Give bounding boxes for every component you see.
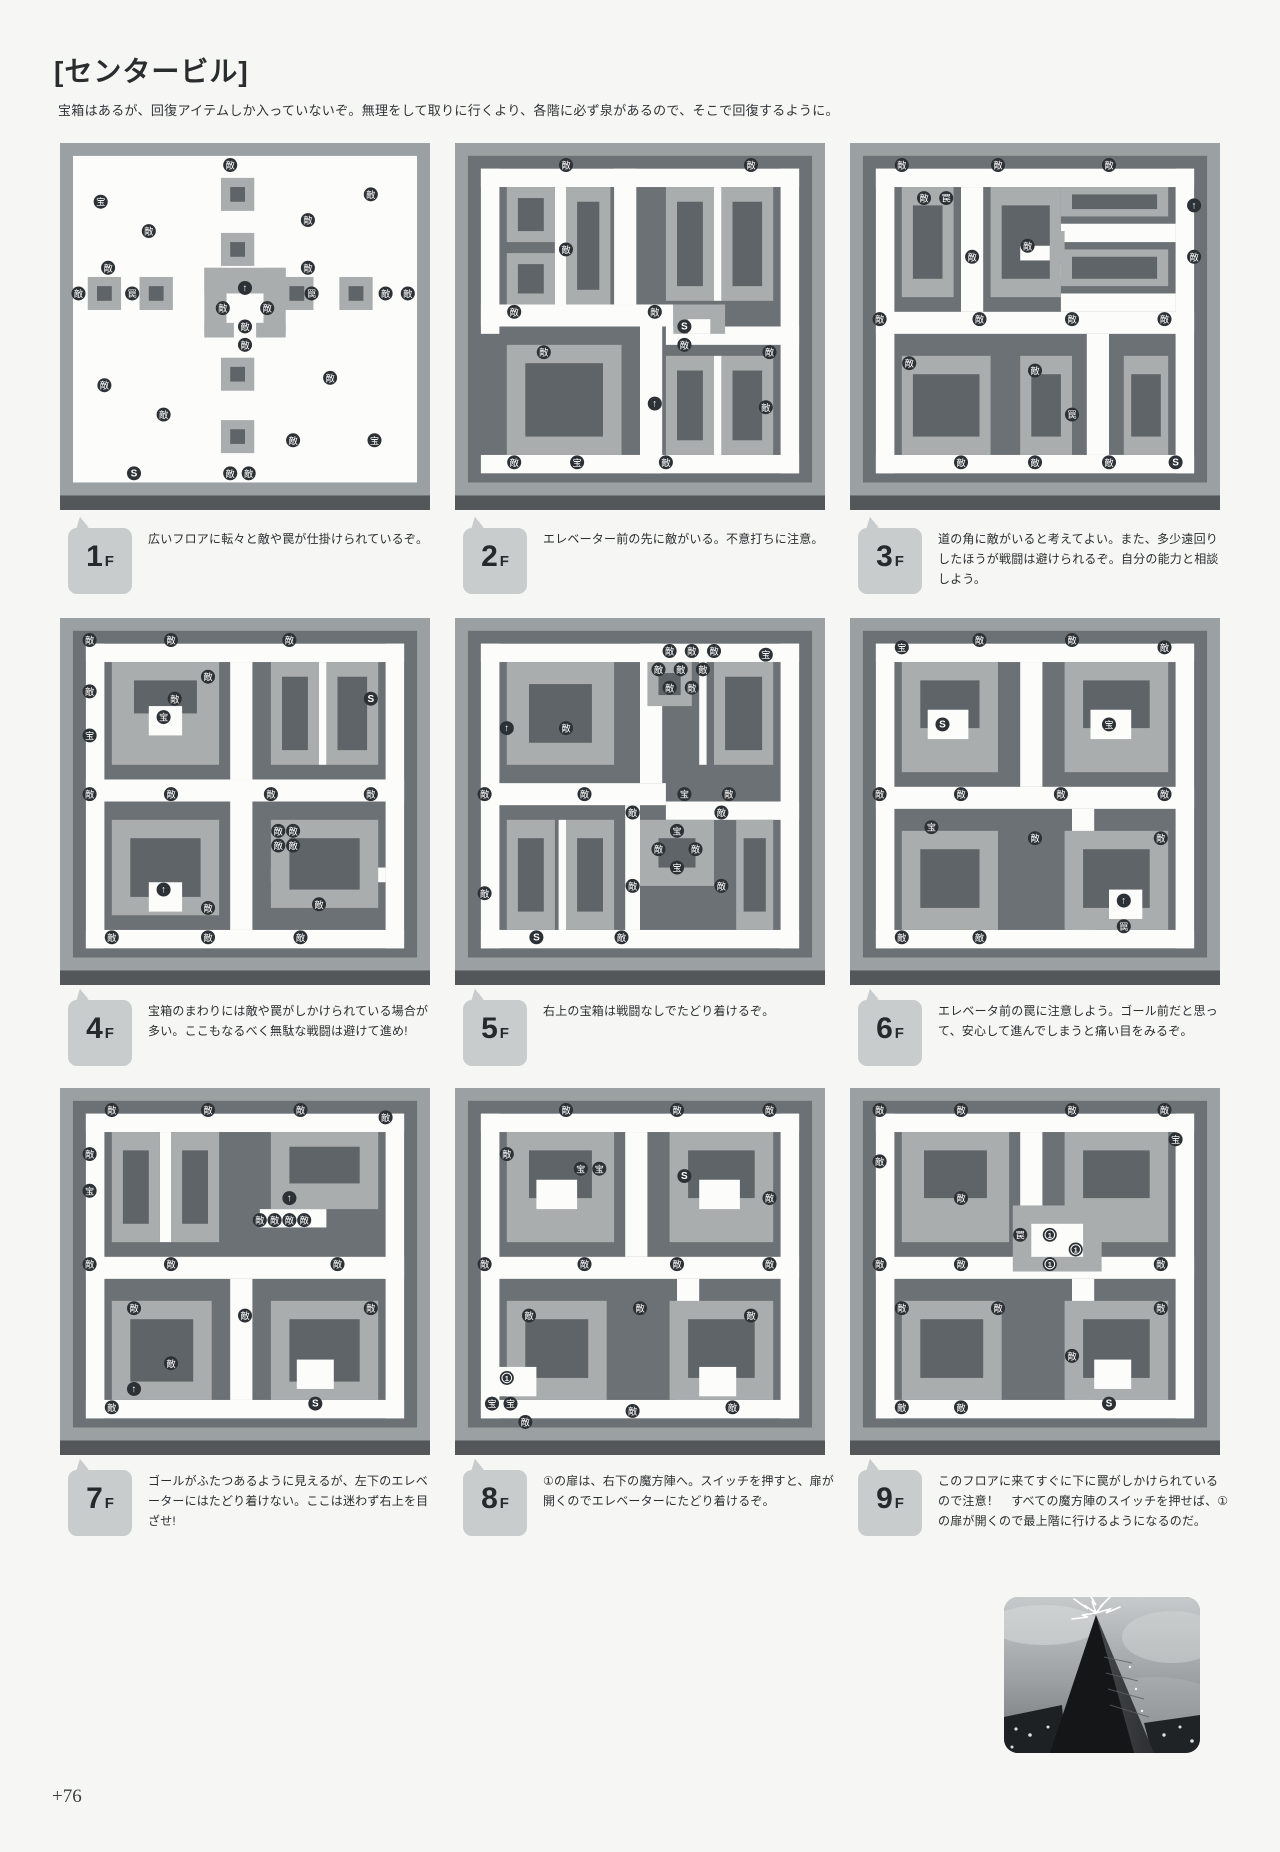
enemy-icon: 敵: [1021, 239, 1035, 253]
enemy-icon: 敵: [954, 1103, 968, 1117]
svg-text:敵: 敵: [288, 435, 297, 446]
floor-map-2f: 敵敵敵敵敵S敵敵敵敵↑敵宝敵: [455, 143, 825, 510]
svg-text:敵: 敵: [285, 1215, 294, 1226]
trap-icon: 罠: [1117, 919, 1131, 933]
svg-text:敵: 敵: [1067, 1350, 1076, 1361]
enemy-icon: 敵: [991, 158, 1005, 172]
svg-text:敵: 敵: [687, 646, 696, 657]
enemy-icon: 敵: [873, 1154, 887, 1168]
svg-text:敵: 敵: [897, 1303, 906, 1314]
enemy-icon: 敵: [895, 1400, 909, 1414]
enemy-icon: 敵: [216, 301, 230, 315]
enemy-icon: 敵: [648, 305, 662, 319]
svg-text:敵: 敵: [381, 1112, 390, 1123]
floor-suffix: F: [500, 553, 509, 570]
enemy-icon: 敵: [674, 662, 688, 676]
enemy-icon: 敵: [282, 633, 296, 647]
svg-text:敵: 敵: [1156, 1303, 1165, 1314]
start-icon: S: [677, 1169, 691, 1183]
enemy-icon: 敵: [965, 250, 979, 264]
svg-text:敵: 敵: [628, 807, 637, 818]
enemy-icon: 敵: [972, 633, 986, 647]
enemy-icon: 敵: [1028, 364, 1042, 378]
enemy-icon: 敵: [762, 345, 776, 359]
svg-text:敵: 敵: [975, 635, 984, 646]
svg-text:宝: 宝: [672, 825, 681, 836]
elevator-icon: ↑: [1117, 894, 1131, 908]
enemy-icon: 敵: [83, 1147, 97, 1161]
svg-text:S: S: [681, 322, 688, 333]
svg-text:敵: 敵: [724, 789, 733, 800]
enemy-icon: 敵: [991, 1301, 1005, 1315]
svg-text:敵: 敵: [100, 380, 109, 391]
svg-text:敵: 敵: [203, 671, 212, 682]
svg-text:敵: 敵: [919, 193, 928, 204]
start-icon: S: [308, 1397, 322, 1411]
enemy-icon: 敵: [895, 158, 909, 172]
enemy-icon: 敵: [559, 721, 573, 735]
svg-text:敵: 敵: [166, 789, 175, 800]
svg-text:敵: 敵: [107, 1402, 116, 1413]
svg-text:敵: 敵: [226, 160, 235, 171]
elevator-icon: ↑: [127, 1382, 141, 1396]
floor-tab-3f: 3F: [858, 528, 922, 594]
enemy-icon: 敵: [105, 930, 119, 944]
svg-text:敵: 敵: [510, 306, 519, 317]
enemy-icon: 敵: [223, 158, 237, 172]
enemy-icon: 敵: [201, 901, 215, 915]
floor-caption-5f: 右上の宝箱は戦闘なしでたどり着けるぞ。: [543, 1002, 835, 1022]
enemy-icon: 敵: [364, 1301, 378, 1315]
floor-tab-2f: 2F: [463, 528, 527, 594]
svg-text:敵: 敵: [628, 880, 637, 891]
svg-text:敵: 敵: [765, 347, 774, 358]
enemy-icon: 敵: [577, 1257, 591, 1271]
svg-text:敵: 敵: [85, 635, 94, 646]
enemy-icon: 敵: [762, 1191, 776, 1205]
enemy-icon: 敵: [201, 930, 215, 944]
enemy-icon: 敵: [762, 1103, 776, 1117]
svg-text:敵: 敵: [687, 682, 696, 693]
floor-number: 1: [86, 542, 103, 572]
svg-text:宝: 宝: [370, 435, 379, 446]
enemy-icon: 敵: [759, 400, 773, 414]
enemy-icon: 敵: [157, 408, 171, 422]
enemy-icon: 敵: [301, 213, 315, 227]
svg-text:宝: 宝: [1104, 719, 1113, 730]
enemy-icon: 敵: [1065, 633, 1079, 647]
svg-text:敵: 敵: [875, 1156, 884, 1167]
trap-icon: 罠: [305, 286, 319, 300]
svg-text:敵: 敵: [480, 1259, 489, 1270]
floor-map-6f: 宝敵敵敵S宝敵敵敵敵宝敵敵↑罠敵敵: [850, 618, 1220, 985]
svg-text:罠: 罠: [942, 194, 951, 204]
intro-text: 宝箱はあるが、回復アイテムしか入っていないぞ。無理をして取りに行くより、各階に必…: [58, 100, 1058, 119]
svg-text:敵: 敵: [296, 932, 305, 943]
treasure-icon: 宝: [574, 1162, 588, 1176]
svg-text:敵: 敵: [296, 1105, 305, 1116]
floor-caption-6f: エレベータ前の罠に注意しよう。ゴール前だと思って、安心して進んでしまうと痛い目を…: [938, 1002, 1230, 1042]
floor-suffix: F: [895, 553, 904, 570]
enemy-icon: 敵: [1157, 1103, 1171, 1117]
enemy-icon: 敵: [168, 692, 182, 706]
enemy-icon: 敵: [271, 839, 285, 853]
guide-page: [センタービル] 宝箱はあるが、回復アイテムしか入っていないぞ。無理をして取りに…: [0, 0, 1280, 1852]
enemy-icon: 敵: [1154, 1301, 1168, 1315]
enemy-icon: 敵: [507, 455, 521, 469]
floor-number: 2: [481, 542, 498, 572]
enemy-icon: 敵: [522, 1309, 536, 1323]
svg-text:敵: 敵: [480, 789, 489, 800]
enemy-icon: 敵: [954, 1191, 968, 1205]
enemy-icon: 敵: [1187, 250, 1201, 264]
svg-text:敵: 敵: [1160, 642, 1169, 653]
enemy-icon: 敵: [323, 371, 337, 385]
svg-text:敵: 敵: [521, 1417, 530, 1428]
svg-text:宝: 宝: [576, 1163, 585, 1174]
svg-text:敵: 敵: [166, 635, 175, 646]
enemy-icon: 敵: [83, 1257, 97, 1271]
svg-text:敵: 敵: [1056, 789, 1065, 800]
svg-text:敵: 敵: [85, 686, 94, 697]
svg-text:敵: 敵: [285, 635, 294, 646]
enemy-icon: 敵: [286, 824, 300, 838]
svg-text:敵: 敵: [170, 693, 179, 704]
floor-caption-4f: 宝箱のまわりには敵や罠がしかけられている場合が多い。ここもなるべく無駄な戦闘は避…: [148, 1002, 440, 1042]
floor-suffix: F: [500, 1025, 509, 1042]
svg-text:敵: 敵: [956, 1193, 965, 1204]
svg-text:敵: 敵: [661, 457, 670, 468]
svg-text:罠: 罠: [1067, 410, 1076, 420]
svg-text:敵: 敵: [480, 888, 489, 899]
svg-text:罠: 罠: [307, 289, 316, 299]
svg-text:S: S: [1106, 1399, 1113, 1410]
treasure-icon: 宝: [670, 824, 684, 838]
svg-text:敵: 敵: [717, 880, 726, 891]
svg-text:敵: 敵: [1067, 314, 1076, 325]
svg-text:敵: 敵: [325, 372, 334, 383]
svg-text:敵: 敵: [539, 347, 548, 358]
svg-text:敵: 敵: [244, 468, 253, 479]
svg-text:敵: 敵: [159, 409, 168, 420]
svg-text:敵: 敵: [956, 789, 965, 800]
enemy-icon: 敵: [614, 930, 628, 944]
enemy-icon: 敵: [142, 224, 156, 238]
svg-text:敵: 敵: [1160, 789, 1169, 800]
svg-text:敵: 敵: [274, 840, 283, 851]
svg-text:敵: 敵: [166, 1358, 175, 1369]
svg-text:↑: ↑: [132, 1384, 137, 1395]
svg-text:敵: 敵: [1160, 314, 1169, 325]
svg-text:罠: 罠: [1119, 922, 1128, 932]
svg-text:敵: 敵: [561, 1105, 570, 1116]
enemy-icon: 敵: [744, 158, 758, 172]
floor-suffix: F: [105, 553, 114, 570]
svg-text:敵: 敵: [524, 1310, 533, 1321]
svg-text:敵: 敵: [366, 189, 375, 200]
floor-caption-7f: ゴールがふたつあるように見えるが、左下のエレベーターにはたどり着けない。ここは迷…: [148, 1472, 440, 1531]
start-icon: S: [935, 717, 949, 731]
tab-tail-icon: [861, 1457, 878, 1474]
treasure-icon: 宝: [895, 640, 909, 654]
tab-tail-icon: [466, 987, 483, 1004]
svg-text:↑: ↑: [504, 723, 509, 734]
enemy-icon: 敵: [902, 356, 916, 370]
svg-text:敵: 敵: [274, 825, 283, 836]
svg-text:敵: 敵: [698, 664, 707, 675]
svg-text:敵: 敵: [975, 932, 984, 943]
svg-text:宝: 宝: [927, 822, 936, 833]
enemy-icon: 敵: [364, 187, 378, 201]
enemy-icon: 敵: [1102, 158, 1116, 172]
enemy-icon: 敵: [873, 1103, 887, 1117]
svg-text:敵: 敵: [765, 1105, 774, 1116]
floor-tab-4f: 4F: [68, 1000, 132, 1066]
enemy-icon: 敵: [725, 1400, 739, 1414]
svg-text:敵: 敵: [875, 1259, 884, 1270]
elevator-icon: ↑: [648, 397, 662, 411]
svg-text:罠: 罠: [128, 289, 137, 299]
svg-text:敵: 敵: [144, 226, 153, 237]
enemy-icon: 敵: [972, 312, 986, 326]
floor-caption-8f: ①の扉は、右下の魔方陣へ。スイッチを押すと、扉が開くのでエレベーターにたどり着け…: [543, 1472, 835, 1512]
enemy-icon: 敵: [1157, 640, 1171, 654]
enemy-icon: 敵: [518, 1415, 532, 1429]
svg-text:敵: 敵: [270, 1215, 279, 1226]
svg-text:敵: 敵: [502, 1149, 511, 1160]
enemy-icon: 敵: [696, 662, 710, 676]
enemy-icon: 敵: [164, 633, 178, 647]
svg-text:敵: 敵: [263, 303, 272, 314]
svg-text:宝: 宝: [572, 457, 581, 468]
elevator-icon: ↑: [500, 721, 514, 735]
enemy-icon: 敵: [917, 191, 931, 205]
svg-text:S: S: [131, 468, 138, 479]
svg-text:宝: 宝: [159, 712, 168, 723]
treasure-icon: 宝: [83, 728, 97, 742]
enemy-icon: 敵: [164, 1356, 178, 1370]
enemy-icon: 敵: [507, 305, 521, 319]
enemy-icon: 敵: [379, 286, 393, 300]
enemy-icon: 敵: [1154, 831, 1168, 845]
start-icon: S: [364, 692, 378, 706]
enemy-icon: 敵: [242, 466, 256, 480]
enemy-icon: 敵: [707, 644, 721, 658]
enemy-icon: 敵: [1065, 312, 1079, 326]
svg-text:敵: 敵: [905, 358, 914, 369]
elevator-icon: ↑: [1187, 198, 1201, 212]
treasure-icon: 宝: [1169, 1132, 1183, 1146]
floor-tab-9f: 9F: [858, 1470, 922, 1536]
enemy-icon: 敵: [164, 787, 178, 801]
svg-text:敵: 敵: [761, 402, 770, 413]
enemy-icon: 敵: [264, 787, 278, 801]
svg-text:敵: 敵: [1067, 1105, 1076, 1116]
enemy-icon: 敵: [537, 345, 551, 359]
enemy-icon: 敵: [201, 670, 215, 684]
svg-text:↑: ↑: [243, 283, 248, 294]
svg-text:敵: 敵: [993, 160, 1002, 171]
floor-number: 7: [86, 1484, 103, 1514]
enemy-icon: 敵: [127, 1301, 141, 1315]
svg-text:敵: 敵: [676, 664, 685, 675]
svg-text:敵: 敵: [240, 339, 249, 350]
svg-text:敵: 敵: [366, 789, 375, 800]
enemy-icon: 敵: [1157, 787, 1171, 801]
svg-text:敵: 敵: [288, 840, 297, 851]
enemy-icon: 敵: [626, 1404, 640, 1418]
svg-text:敵: 敵: [403, 288, 412, 299]
treasure-icon: 宝: [592, 1162, 606, 1176]
svg-text:敵: 敵: [654, 664, 663, 675]
treasure-icon: 宝: [759, 648, 773, 662]
floor-map-9f: 敵敵敵敵宝敵敵罠111敵敵敵敵敵敵敵S敵敵: [850, 1088, 1220, 1455]
enemy-icon: 敵: [688, 842, 702, 856]
treasure-icon: 宝: [157, 710, 171, 724]
enemy-icon: 敵: [238, 320, 252, 334]
tab-tail-icon: [861, 515, 878, 532]
svg-text:敵: 敵: [510, 457, 519, 468]
svg-text:敵: 敵: [1189, 251, 1198, 262]
elevator-icon: ↑: [157, 883, 171, 897]
svg-text:敵: 敵: [1023, 240, 1032, 251]
enemy-icon: 敵: [105, 1103, 119, 1117]
svg-text:敵: 敵: [85, 789, 94, 800]
svg-text:敵: 敵: [240, 1310, 249, 1321]
svg-text:S: S: [681, 1171, 688, 1182]
svg-text:S: S: [533, 932, 540, 943]
svg-text:敵: 敵: [561, 244, 570, 255]
svg-text:敵: 敵: [288, 825, 297, 836]
tab-tail-icon: [71, 1457, 88, 1474]
enemy-icon: 敵: [364, 787, 378, 801]
floor-suffix: F: [895, 1495, 904, 1512]
enemy-icon: 敵: [954, 455, 968, 469]
svg-text:敵: 敵: [650, 306, 659, 317]
enemy-icon: 敵: [1028, 455, 1042, 469]
treasure-icon: 宝: [83, 1184, 97, 1198]
numbered-door-icon: 1: [1069, 1243, 1083, 1257]
page-number: +76: [52, 1786, 82, 1808]
svg-text:S: S: [367, 694, 374, 705]
enemy-icon: 敵: [83, 633, 97, 647]
svg-text:敵: 敵: [203, 932, 212, 943]
svg-text:敵: 敵: [314, 899, 323, 910]
svg-text:敵: 敵: [561, 723, 570, 734]
enemy-icon: 敵: [500, 1147, 514, 1161]
svg-text:宝: 宝: [595, 1163, 604, 1174]
tab-tail-icon: [466, 1457, 483, 1474]
enemy-icon: 敵: [83, 787, 97, 801]
svg-text:敵: 敵: [1104, 160, 1113, 171]
enemy-icon: 敵: [401, 286, 415, 300]
enemy-icon: 敵: [293, 930, 307, 944]
floor-number: 6: [876, 1014, 893, 1044]
floor-map-3f: 敵敵敵敵罠↑敵敵敵敵敵敵敵敵敵罠敵敵敵S: [850, 143, 1220, 510]
svg-text:敵: 敵: [654, 844, 663, 855]
treasure-icon: 宝: [570, 455, 584, 469]
svg-text:1: 1: [1048, 1260, 1052, 1269]
svg-text:敵: 敵: [166, 1259, 175, 1270]
svg-text:↑: ↑: [1192, 200, 1197, 211]
svg-text:敵: 敵: [956, 1105, 965, 1116]
svg-text:敵: 敵: [203, 1105, 212, 1116]
svg-text:1: 1: [505, 1374, 509, 1383]
floor-suffix: F: [895, 1025, 904, 1042]
floor-suffix: F: [500, 1495, 509, 1512]
svg-text:敵: 敵: [226, 468, 235, 479]
svg-text:宝: 宝: [487, 1398, 496, 1409]
enemy-icon: 敵: [677, 338, 691, 352]
floor-caption-9f: このフロアに来てすぐに下に罠がしかけられているので注意！ すべての魔方陣のスイッ…: [938, 1472, 1230, 1531]
svg-text:敵: 敵: [680, 339, 689, 350]
svg-text:罠: 罠: [1016, 1230, 1025, 1240]
svg-text:敵: 敵: [628, 1406, 637, 1417]
svg-text:敵: 敵: [975, 314, 984, 325]
enemy-icon: 敵: [223, 466, 237, 480]
enemy-icon: 敵: [286, 839, 300, 853]
enemy-icon: 敵: [663, 644, 677, 658]
enemy-icon: 敵: [972, 930, 986, 944]
treasure-icon: 宝: [503, 1397, 517, 1411]
svg-text:敵: 敵: [300, 1215, 309, 1226]
svg-text:宝: 宝: [96, 196, 105, 207]
enemy-icon: 敵: [762, 1257, 776, 1271]
svg-text:敵: 敵: [303, 215, 312, 226]
svg-text:敵: 敵: [967, 251, 976, 262]
floor-number: 8: [481, 1484, 498, 1514]
svg-text:敵: 敵: [580, 789, 589, 800]
enemy-icon: 敵: [744, 1309, 758, 1323]
svg-text:敵: 敵: [107, 932, 116, 943]
treasure-icon: 宝: [94, 195, 108, 209]
trap-icon: 罠: [939, 191, 953, 205]
floor-tab-6f: 6F: [858, 1000, 922, 1066]
svg-text:敵: 敵: [303, 262, 312, 273]
enemy-icon: 敵: [286, 433, 300, 447]
floor-caption-3f: 道の角に敵がいると考えてよい。また、多少遠回りしたほうが戦闘は避けられるぞ。自分…: [938, 530, 1230, 589]
tab-tail-icon: [71, 515, 88, 532]
svg-text:敵: 敵: [561, 160, 570, 171]
floor-number: 3: [876, 542, 893, 572]
tab-tail-icon: [71, 987, 88, 1004]
svg-text:宝: 宝: [672, 862, 681, 873]
svg-text:敵: 敵: [107, 1105, 116, 1116]
enemy-icon: 敵: [478, 1257, 492, 1271]
enemy-icon: 敵: [1065, 1349, 1079, 1363]
floor-tab-7f: 7F: [68, 1470, 132, 1536]
start-icon: S: [127, 466, 141, 480]
enemy-icon: 敵: [297, 1213, 311, 1227]
svg-text:S: S: [1172, 457, 1179, 468]
enemy-icon: 敵: [670, 1103, 684, 1117]
svg-text:敵: 敵: [1104, 457, 1113, 468]
svg-text:敵: 敵: [1160, 1105, 1169, 1116]
treasure-icon: 宝: [924, 820, 938, 834]
svg-text:敵: 敵: [580, 1259, 589, 1270]
svg-text:敵: 敵: [1030, 457, 1039, 468]
svg-text:敵: 敵: [665, 646, 674, 657]
svg-text:敵: 敵: [1030, 365, 1039, 376]
svg-text:敵: 敵: [1156, 833, 1165, 844]
floor-caption-1f: 広いフロアに転々と敵や罠が仕掛けられているぞ。: [148, 530, 440, 550]
elevator-icon: ↑: [282, 1191, 296, 1205]
floor-number: 4: [86, 1014, 103, 1044]
svg-text:敵: 敵: [129, 1303, 138, 1314]
enemy-icon: 敵: [312, 897, 326, 911]
enemy-icon: 敵: [330, 1257, 344, 1271]
svg-text:宝: 宝: [680, 789, 689, 800]
